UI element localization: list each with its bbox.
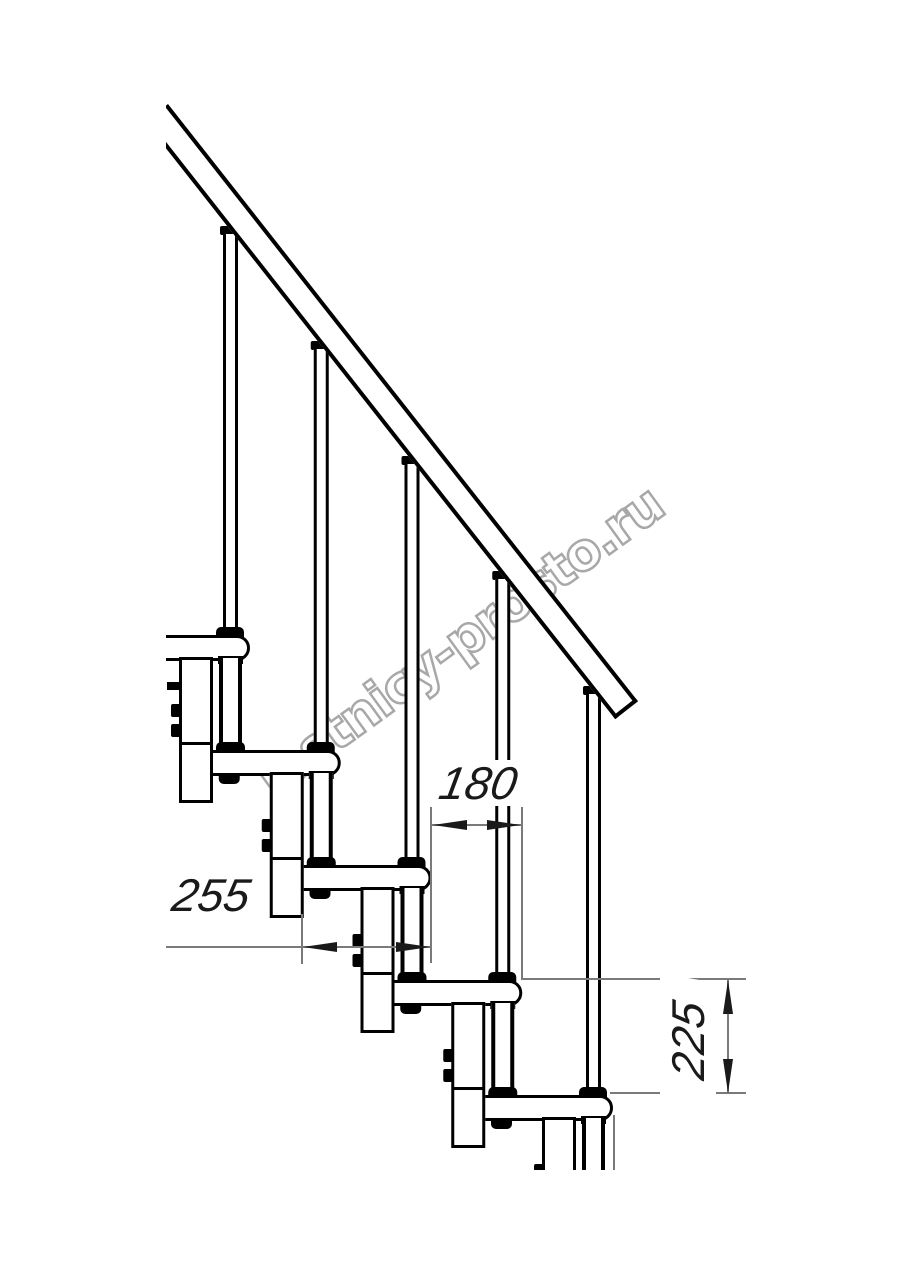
dimension-arrow	[723, 1059, 733, 1093]
dimension-arrow	[723, 980, 733, 1014]
pipe-bottom-collar	[216, 742, 245, 753]
bracket-bolt	[171, 724, 181, 737]
sheet-crop-bottom	[0, 1170, 914, 1280]
baluster-base-collar	[216, 627, 244, 637]
dimension-arrow	[303, 942, 337, 952]
dimension-label-rise: 225	[660, 973, 716, 1107]
spine-bracket-plate	[179, 657, 213, 803]
dimension-label-depth: 255	[166, 872, 257, 918]
extension-line	[521, 807, 523, 980]
bracket-seam	[181, 742, 211, 745]
extension-line	[613, 1115, 615, 1170]
sheet-crop-left	[0, 0, 166, 1280]
dimension-arrow	[433, 820, 467, 830]
extension-line	[521, 978, 746, 980]
dimension-line-depth	[166, 946, 432, 948]
baluster	[223, 234, 238, 636]
extension-line	[301, 914, 303, 964]
extension-line	[430, 807, 432, 963]
spine-pipe	[219, 658, 242, 752]
dimension-arrow	[487, 820, 521, 830]
bracket-bolt	[171, 704, 181, 717]
dimension-label-run: 180	[433, 760, 524, 806]
dimension-arrow	[396, 942, 430, 952]
staircase-technical-drawing: lestnicy-prosto.ru	[0, 0, 914, 1280]
